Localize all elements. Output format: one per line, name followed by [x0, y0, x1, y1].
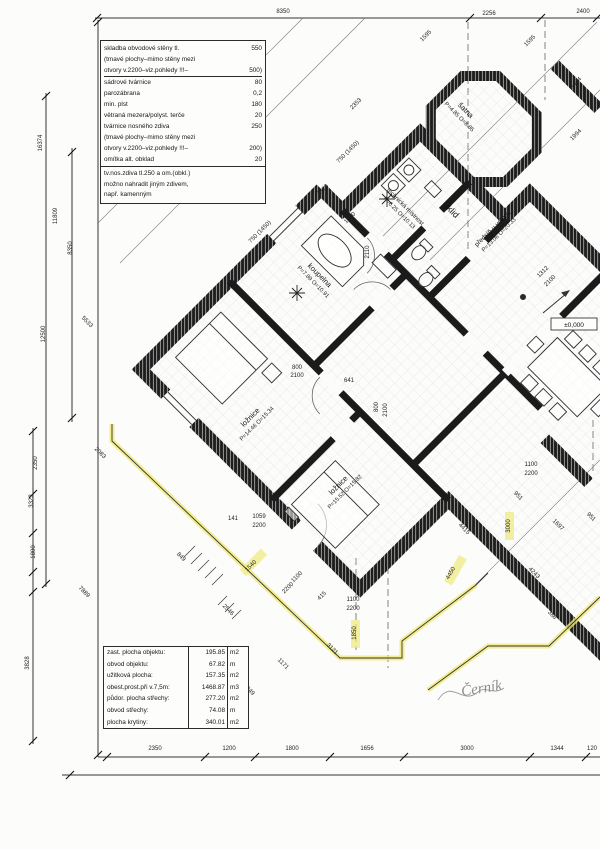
dimension-label: 1994	[569, 128, 583, 142]
dimension-label: 2083	[93, 446, 107, 460]
dimension-label: 2353	[349, 97, 363, 111]
area-table: zast. plocha objektu:195.85m2 obvod obje…	[103, 646, 249, 729]
dimension-label: 3323	[29, 494, 35, 508]
table-row: obest.prost.při v.7,5m:1468.87m3	[104, 682, 248, 694]
dimension-label: 849	[175, 552, 187, 564]
dimension-label: 2400	[576, 9, 590, 15]
spec-row: omítka alt. obklad20	[104, 154, 262, 165]
dimension-label: 1171	[276, 658, 290, 672]
dimension-label: 2110	[365, 245, 371, 259]
table-row: užitková plocha:157.35m2	[104, 670, 248, 682]
note-line: např. kamenným	[104, 190, 262, 201]
dimension-label: 1100	[291, 570, 305, 584]
spec-row: tvárnice nosného zdiva250	[104, 121, 262, 132]
dimension-label: 5533	[80, 315, 94, 329]
dimension-label: 750 (1450)	[336, 140, 361, 165]
signature-text: Černík	[460, 677, 503, 700]
dimension-label: 1595	[523, 34, 537, 48]
dimension-label: 1595	[419, 29, 433, 43]
dimension-label: 2200	[252, 523, 266, 529]
floor-plan-sheet: ±0,000 Černík 83502256240015951595169419…	[0, 0, 600, 849]
note-line: možno nahradit jiným zdivem,	[104, 180, 262, 191]
table-row: půdor. plocha střechy:277.20m2	[104, 693, 248, 705]
table-row: obvod objektu:67.82m	[104, 659, 248, 671]
spec-row: (tmavé plochy–mimo stěny mezi	[104, 54, 262, 65]
dimension-label: 2200	[524, 471, 538, 477]
spec-row: min. plst180	[104, 99, 262, 110]
spec-row: (tmavé plochy–mimo stěny mezi	[104, 132, 262, 143]
table-row: obvod střechy:74.08m	[104, 705, 248, 717]
column-marker	[520, 294, 526, 300]
dimension-label: 1344	[550, 746, 564, 752]
dimension-label: 3000	[506, 519, 512, 533]
spec-row: otvory v.2200–viz.pohledy !!!–500)	[104, 65, 262, 77]
dimension-label: 2546	[221, 603, 235, 617]
dimension-label: 800	[292, 365, 303, 371]
table-row: plocha krytiny:340.01m2	[104, 717, 248, 729]
dimension-label: 12500	[41, 325, 47, 342]
dimension-label: 141	[228, 516, 239, 522]
dimension-label: 415	[317, 590, 329, 602]
dimension-label: 1800	[285, 746, 299, 752]
dimension-label: 1100	[525, 462, 539, 468]
note-line: tv.nos.zdiva tl.250 a om.(obkl.)	[104, 169, 262, 180]
signature: Černík	[438, 677, 504, 700]
dimension-label: 11809	[53, 207, 59, 224]
dimension-label: 2350	[33, 456, 39, 470]
dimension-label: 800	[374, 401, 380, 412]
spec-row: skladba obvodové stěny tl.550	[104, 43, 262, 54]
dimension-label: 7889	[77, 585, 91, 599]
level-marker-text: ±0,000	[564, 322, 584, 329]
dimension-label: 1800	[31, 545, 37, 559]
spec-row: otvory v.2200–viz.pohledy !!!–200)	[104, 143, 262, 154]
dimension-label: 3828	[25, 656, 31, 670]
dimension-label: 120	[587, 746, 598, 752]
dimension-label: 1100	[347, 597, 361, 603]
dimension-label: 8350	[68, 241, 74, 255]
spec-row: parozábrana0,2	[104, 88, 262, 99]
table-row: zast. plocha objektu:195.85m2	[104, 647, 248, 659]
spec-row: sádrové tvárnice80	[104, 77, 262, 88]
dimension-label: 641	[344, 378, 355, 384]
spec-box: skladba obvodové stěny tl.550 (tmavé plo…	[100, 40, 266, 167]
plan-canvas: ±0,000 Černík 83502256240015951595169419…	[0, 0, 600, 849]
dimension-label: 2200	[346, 606, 360, 612]
dimension-label: 2350	[148, 746, 162, 752]
dimension-label: 1059	[252, 514, 266, 520]
dimension-label: 1850	[352, 626, 358, 640]
dimension-label: 2100	[383, 403, 389, 417]
dimension-label: 2256	[482, 11, 496, 17]
level-marker: ±0,000	[551, 318, 597, 330]
note-box: tv.nos.zdiva tl.250 a om.(obkl.) možno n…	[100, 166, 266, 204]
dimension-label: 2100	[290, 373, 304, 379]
dimension-label: 1656	[360, 746, 374, 752]
dimension-label: 8350	[276, 9, 290, 15]
dimension-label: 16374	[38, 134, 44, 151]
dimension-label: 3000	[460, 746, 474, 752]
spec-row: větraná mezera/polyst. terče20	[104, 110, 262, 121]
dimension-label: 1200	[222, 746, 236, 752]
